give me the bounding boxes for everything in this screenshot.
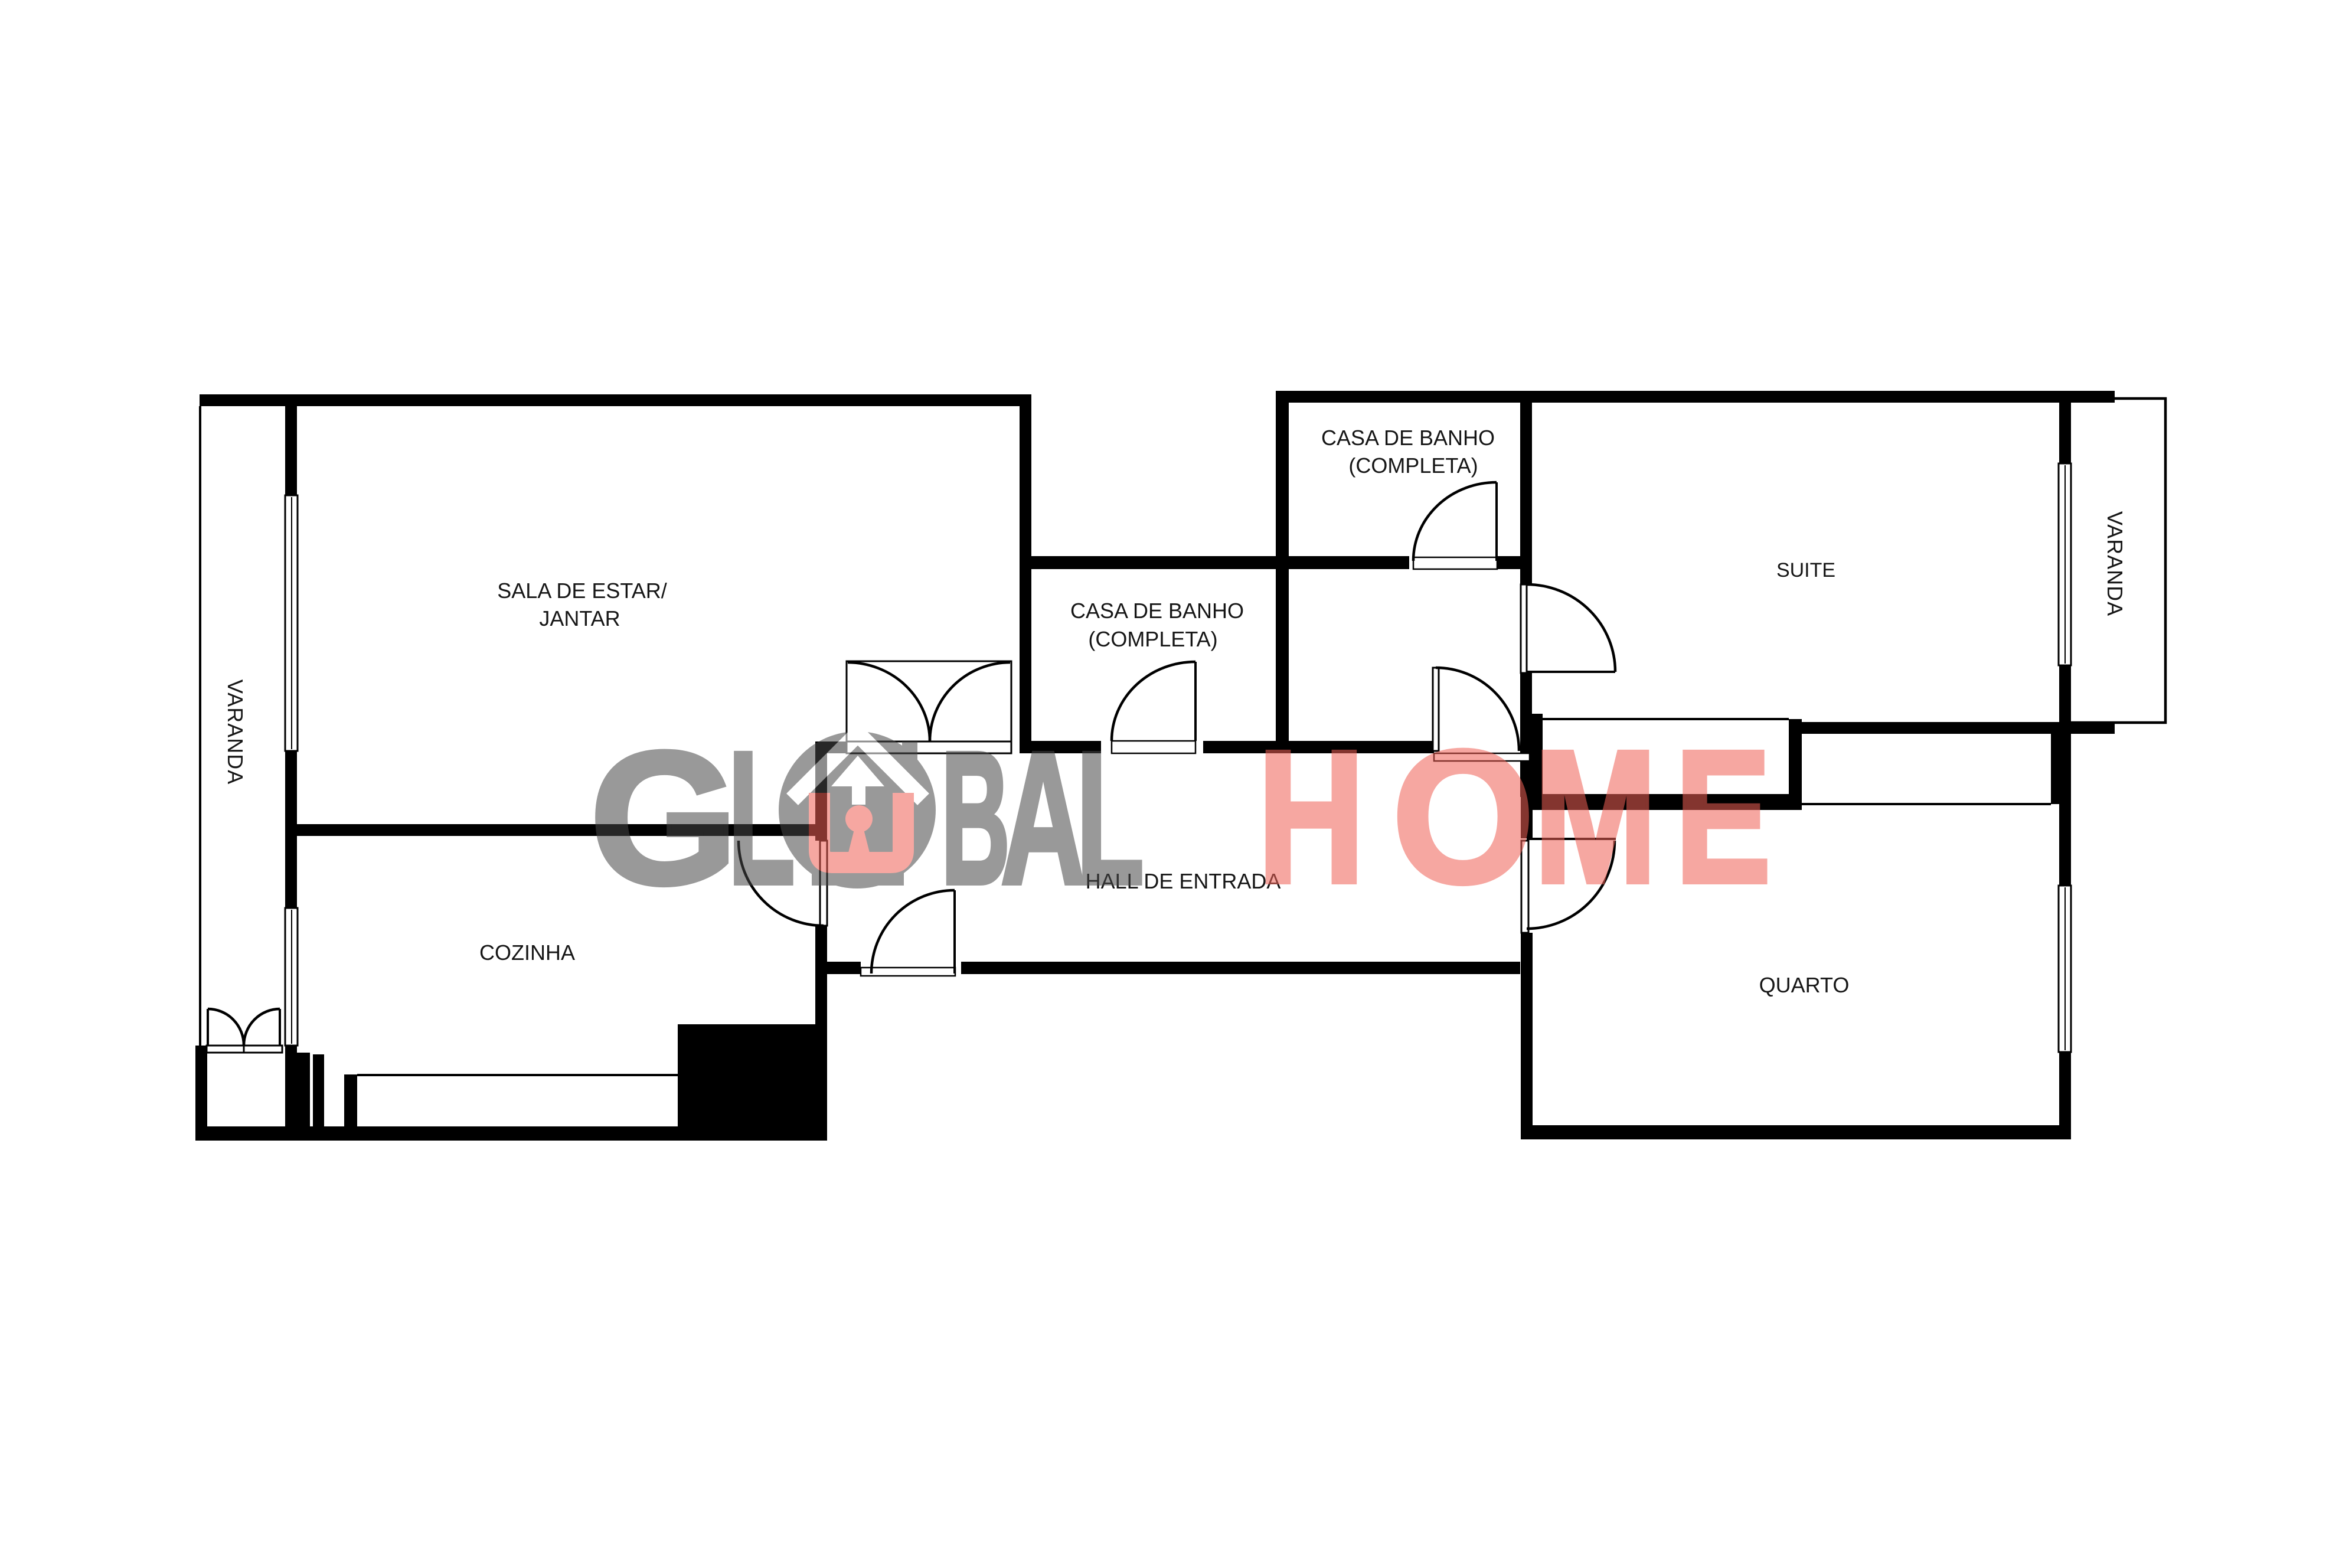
svg-text:SALA DE ESTAR/: SALA DE ESTAR/ bbox=[497, 579, 667, 603]
svg-text:SUITE: SUITE bbox=[1776, 559, 1835, 582]
svg-text:B: B bbox=[941, 712, 1010, 923]
svg-text:CASA DE BANHO: CASA DE BANHO bbox=[1070, 599, 1244, 623]
svg-text:M: M bbox=[1534, 711, 1657, 922]
svg-text:H: H bbox=[1257, 711, 1365, 922]
svg-text:JANTAR: JANTAR bbox=[539, 606, 620, 631]
svg-text:E: E bbox=[1675, 711, 1771, 922]
svg-text:VARANDA: VARANDA bbox=[223, 680, 247, 785]
svg-text:G: G bbox=[590, 712, 738, 923]
svg-text:CASA DE BANHO: CASA DE BANHO bbox=[1321, 426, 1495, 450]
svg-text:L: L bbox=[1076, 712, 1144, 923]
svg-text:COZINHA: COZINHA bbox=[479, 940, 575, 965]
svg-text:(COMPLETA): (COMPLETA) bbox=[1088, 627, 1217, 651]
svg-text:VARANDA: VARANDA bbox=[2103, 511, 2127, 616]
svg-text:A: A bbox=[1001, 712, 1086, 923]
svg-text:QUARTO: QUARTO bbox=[1759, 973, 1850, 997]
svg-text:(COMPLETA): (COMPLETA) bbox=[1348, 453, 1478, 478]
svg-text:O: O bbox=[1392, 711, 1534, 922]
